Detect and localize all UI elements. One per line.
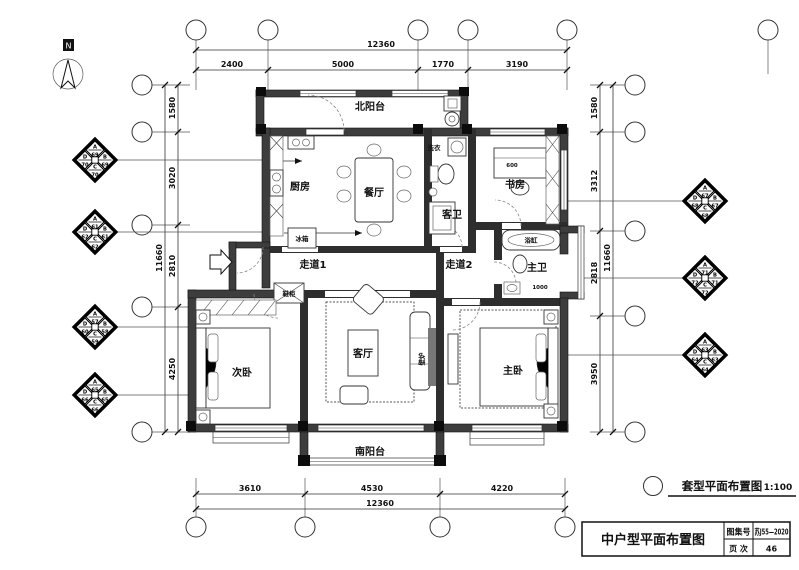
detail-marker: A71B71C72D72 [684, 257, 726, 299]
dim-top-1: 2400 [221, 60, 244, 69]
dim-bot-overall: 12360 [366, 499, 394, 508]
svg-text:72: 72 [691, 280, 699, 286]
svg-text:A: A [703, 263, 707, 269]
dimension-right: 1580 3312 2818 3950 11660 [590, 75, 645, 442]
label-corridor1: 走道1 [299, 258, 327, 271]
atlas-value: 苏J55—2020 [755, 527, 789, 537]
dim-bath: 1000 [532, 285, 547, 291]
detail-marker: A63B63C64D64 [684, 334, 726, 376]
dimension-left: 11660 1580 3020 2810 4250 [132, 75, 190, 442]
title-block: 中户型平面布置图 图集号 苏J55—2020 页 次 46 [582, 522, 790, 556]
label-master-bath: 主卫 [527, 261, 547, 274]
dim-right-1: 1580 [590, 96, 599, 119]
svg-text:68: 68 [701, 213, 709, 219]
svg-text:D: D [693, 350, 698, 356]
svg-text:D: D [693, 273, 698, 279]
label-master-bedroom: 主卧 [503, 364, 523, 377]
dim-left-1: 1580 [168, 96, 177, 119]
svg-text:64: 64 [701, 367, 709, 373]
label-fridge: 冰箱 [296, 234, 310, 243]
dim-left-2: 3020 [168, 166, 177, 189]
label-north-balcony: 北阳台 [355, 100, 385, 113]
svg-text:62: 62 [81, 234, 89, 240]
label-laundry: 洗衣 [428, 143, 442, 152]
north-label: N [66, 42, 72, 51]
svg-text:C: C [93, 332, 97, 338]
scale-note-title: 套型平面布置图 [682, 479, 763, 493]
dim-right-overall: 11660 [603, 244, 612, 272]
dim-right-3: 2818 [590, 261, 599, 284]
label-study: 书房 [505, 178, 525, 191]
label-guest-bath: 客卫 [441, 208, 462, 221]
svg-text:A: A [93, 217, 97, 223]
svg-text:71: 71 [711, 280, 719, 286]
svg-text:65: 65 [101, 397, 109, 403]
atlas-label: 图集号 [727, 527, 751, 537]
svg-text:D: D [83, 227, 88, 233]
svg-text:63: 63 [711, 357, 719, 363]
detail-marker: A61B61C62D62 [74, 211, 116, 253]
detail-marker: A57B58C59D60 [74, 306, 116, 348]
svg-text:D: D [83, 322, 88, 328]
svg-text:C: C [93, 165, 97, 171]
label-fireplace: 壁炉 [417, 352, 426, 366]
svg-text:B: B [103, 227, 107, 233]
dim-desk: 600 [506, 163, 518, 169]
detail-marker: A65B65C66D66 [74, 374, 116, 416]
svg-text:62: 62 [91, 244, 99, 250]
dim-top-2: 5000 [332, 60, 355, 69]
svg-text:A: A [703, 186, 707, 192]
svg-text:60: 60 [81, 329, 89, 335]
svg-text:67: 67 [711, 203, 719, 209]
dim-left-4: 4250 [168, 357, 177, 380]
svg-text:68: 68 [691, 203, 699, 209]
svg-text:61: 61 [101, 234, 109, 240]
svg-text:59: 59 [91, 339, 99, 345]
scale-note: 套型平面布置图 1:100 [644, 477, 797, 497]
label-second-bedroom: 次卧 [232, 366, 252, 379]
svg-text:C: C [703, 283, 707, 289]
label-dining: 餐厅 [363, 186, 384, 199]
svg-text:D: D [83, 155, 88, 161]
svg-text:C: C [93, 400, 97, 406]
svg-text:D: D [693, 196, 698, 202]
detail-marker: A67B67C68D68 [684, 180, 726, 222]
label-bathtub: 浴缸 [525, 236, 539, 245]
svg-text:66: 66 [81, 397, 89, 403]
label-living: 客厅 [352, 347, 373, 360]
svg-text:C: C [703, 360, 707, 366]
dim-top-4: 3190 [506, 60, 529, 69]
svg-text:69: 69 [101, 162, 109, 168]
dimension-bottom: 3610 4530 4220 12360 [186, 478, 575, 537]
dim-top-3: 1770 [432, 60, 455, 69]
svg-text:A: A [93, 145, 97, 151]
title-block-title: 中户型平面布置图 [601, 532, 705, 548]
label-kitchen: 厨房 [290, 180, 310, 193]
svg-text:70: 70 [81, 162, 89, 168]
page-label: 页 次 [729, 544, 748, 554]
svg-text:66: 66 [91, 407, 99, 413]
dim-left-overall: 11660 [155, 244, 164, 272]
svg-text:A: A [93, 380, 97, 386]
dim-bot-2: 4530 [361, 484, 384, 493]
dimension-top: 12360 2400 5000 1770 3190 [193, 40, 570, 73]
detail-marker: A69B69C70D70 [74, 139, 116, 181]
label-south-balcony: 南阳台 [355, 445, 385, 458]
dim-bot-1: 3610 [239, 484, 262, 493]
dim-bot-3: 4220 [491, 484, 514, 493]
svg-text:D: D [83, 390, 88, 396]
svg-text:B: B [713, 196, 717, 202]
scale-note-value: 1:100 [764, 483, 793, 493]
drawing-sheet: N 12360 2400 5000 1770 3190 3610 4530 42… [0, 0, 799, 566]
walls [186, 87, 584, 466]
floor-plan-svg: N 12360 2400 5000 1770 3190 3610 4530 42… [0, 0, 799, 566]
svg-text:58: 58 [101, 329, 109, 335]
label-shoe-cabinet: 鞋柜 [283, 289, 297, 298]
dim-right-2: 3312 [590, 170, 599, 192]
label-corridor2: 走道2 [445, 258, 473, 271]
svg-text:64: 64 [691, 357, 699, 363]
svg-text:B: B [103, 390, 107, 396]
svg-text:B: B [713, 350, 717, 356]
dim-right-4: 3950 [590, 362, 599, 385]
svg-text:70: 70 [91, 172, 99, 178]
svg-text:A: A [93, 312, 97, 318]
grid-bubbles-top [186, 20, 778, 90]
entry-arrow-icon [210, 250, 232, 274]
svg-text:A: A [703, 340, 707, 346]
page-value: 46 [766, 545, 778, 554]
dim-top-overall: 12360 [367, 40, 395, 49]
svg-text:B: B [713, 273, 717, 279]
svg-text:C: C [703, 206, 707, 212]
svg-text:B: B [103, 322, 107, 328]
svg-text:C: C [93, 237, 97, 243]
north-arrow-icon: N [53, 39, 83, 89]
svg-text:B: B [103, 155, 107, 161]
svg-text:72: 72 [701, 290, 709, 296]
dim-left-3: 2810 [168, 254, 177, 277]
